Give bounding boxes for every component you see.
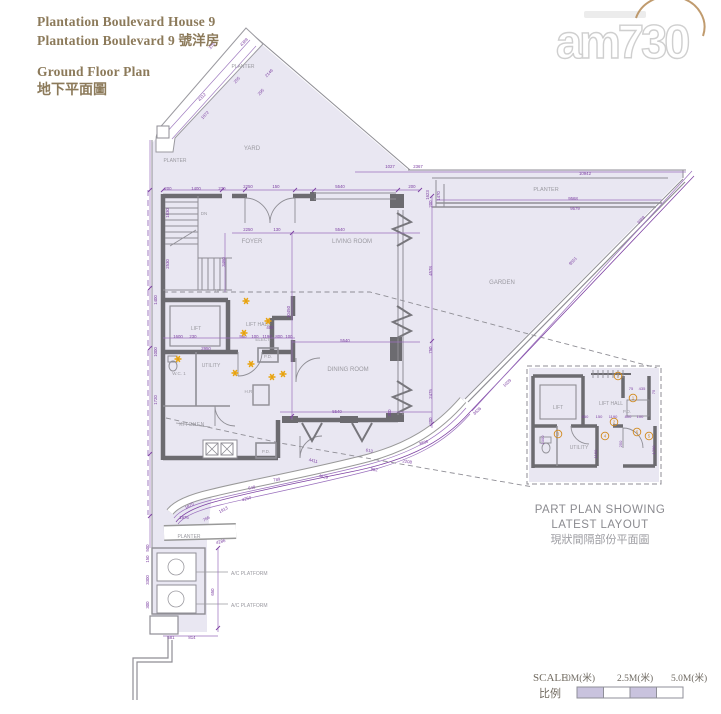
- dimension-label: 750: [428, 346, 433, 354]
- dimension-label: 5540: [335, 184, 345, 189]
- dimension-label: 4286: [215, 538, 226, 545]
- inset-dimension-label: 250: [618, 440, 623, 447]
- dimension-label: 2475: [428, 389, 433, 399]
- scale-tick-2: 5.0M(米): [671, 672, 707, 684]
- dimension-label: 200: [164, 186, 172, 191]
- room-label: A/C PLATFORM: [231, 571, 268, 577]
- dimension-label: 200: [428, 200, 433, 208]
- dimension-label: 9568: [568, 196, 578, 201]
- room-label: LIFT: [191, 326, 201, 332]
- room-label: FOYER: [242, 239, 263, 245]
- inset-part-plan: LIFTLIFT HALLP.D.UTILITY 7123465 6501501…: [527, 366, 661, 484]
- inset-dimension-label: 650: [582, 414, 589, 419]
- room-label: PLANTER: [231, 64, 254, 70]
- dimension-label: 2367: [413, 164, 423, 169]
- inset-caption: PART PLAN SHOWING LATEST LAYOUT 現狀間隔部份平面…: [535, 504, 666, 546]
- dimension-label: 3460: [221, 257, 226, 267]
- dimension-label: 150: [272, 184, 280, 189]
- dimension-label: 581: [167, 635, 175, 640]
- dimension-label: 5540: [335, 227, 345, 232]
- dimension-label: 1039: [502, 377, 513, 388]
- dimension-label: 2208: [402, 458, 413, 464]
- scale-tick-1: 2.5M(米): [617, 672, 653, 684]
- dimension-label: 300: [145, 601, 150, 609]
- dimension-label: 1400: [153, 295, 158, 305]
- dimension-label: 4629: [318, 473, 329, 480]
- inset-dimension-label: 75: [651, 389, 656, 394]
- dimension-label: 10942: [579, 171, 592, 176]
- inset-dimension-label: 100: [637, 414, 644, 419]
- dimension-label: 500: [145, 544, 150, 552]
- dimension-label: 2530: [165, 259, 170, 269]
- dimension-label: 3300: [145, 575, 150, 585]
- inset-dimension-label: 1190: [609, 414, 618, 419]
- dimension-label: 4250: [241, 495, 252, 503]
- dimension-label: 3636: [472, 405, 483, 416]
- dimension-label: 100: [251, 334, 259, 339]
- dimension-label: 982: [370, 467, 378, 473]
- dimension-label: 230: [189, 334, 197, 339]
- dimension-label: 1913: [218, 505, 229, 514]
- room-label: PLANTER: [177, 534, 200, 540]
- room-label: DINING ROOM: [327, 367, 368, 373]
- room-label: P.D.: [262, 449, 270, 454]
- dimension-label: 1000: [153, 347, 158, 357]
- dimension-label: 2950: [201, 346, 211, 351]
- dimension-label: 1027: [385, 164, 395, 169]
- dimension-label: 1720: [153, 395, 158, 405]
- scale-bar: SCALE 比例 0M(米) 2.5M(米) 5.0M(米): [533, 672, 707, 700]
- dimension-label: 1400: [191, 186, 201, 191]
- dimension-label: 814: [188, 635, 196, 640]
- room-label: P.D.: [264, 354, 272, 359]
- dimension-label: 150: [145, 555, 150, 563]
- scale-label-zh: 比例: [539, 686, 561, 700]
- dimension-label: 650: [210, 588, 215, 596]
- am730-logo: am730: [556, 0, 705, 68]
- dimension-label: 230: [218, 186, 226, 191]
- room-label: UTILITY: [202, 363, 221, 369]
- dimension-label: 800: [275, 334, 283, 339]
- room-label: GARDEN: [489, 280, 515, 286]
- dimension-label: 1623: [425, 190, 430, 200]
- room-label: H.R.: [245, 389, 254, 394]
- inset-room-label: LIFT: [553, 405, 563, 411]
- scale-tick-0: 0M(米): [566, 672, 595, 684]
- inset-dimension-label: 435: [639, 386, 646, 391]
- inset-caption-line2: LATEST LAYOUT: [551, 519, 648, 531]
- dimension-label: 1470: [436, 191, 441, 201]
- inset-caption-line3: 現狀間隔部份平面圖: [551, 532, 650, 546]
- inset-dimension-label: 800: [625, 414, 632, 419]
- room-label: A/C PLATFORM: [231, 603, 268, 609]
- page: { "title": { "line1": "Plantation Boulev…: [0, 0, 721, 714]
- dimension-label: 1190: [262, 334, 272, 339]
- room-label: DN: [201, 211, 208, 216]
- room-label: UP: [215, 288, 221, 293]
- dimension-label: 5540: [332, 409, 342, 414]
- dimension-label: 1830: [165, 208, 170, 218]
- dimension-label: 2250: [243, 184, 253, 189]
- inset-caption-line1: PART PLAN SHOWING: [535, 504, 666, 516]
- dimension-label: 4578: [428, 266, 433, 276]
- inset-dimension-label: 1000: [540, 435, 545, 445]
- floor-plan-svg: YARDFOYERLIVING ROOMGARDENDINING ROOMLIF…: [0, 0, 721, 714]
- dimension-label: 1976: [179, 515, 189, 520]
- room-label: W.C. 1: [172, 371, 186, 376]
- dimension-label: 9579: [570, 206, 580, 211]
- inset-dimension-label: 75: [629, 386, 634, 391]
- dimension-label: 2250: [243, 227, 253, 232]
- inset-dimension-label: 1700: [651, 445, 656, 455]
- dimension-label: 200: [428, 417, 433, 425]
- dimension-label: 10450: [286, 305, 291, 318]
- dimension-label: 130: [273, 227, 281, 232]
- dimension-label: 375: [208, 41, 217, 50]
- room-label: YARD: [244, 146, 261, 152]
- room-label: PLANTER: [163, 158, 186, 164]
- room-label: PLANTER: [533, 187, 558, 193]
- dimension-label: 1600: [173, 334, 183, 339]
- inset-room-label: UTILITY: [570, 445, 589, 451]
- dimension-label: 200: [408, 184, 416, 189]
- dimension-label: 300: [387, 409, 392, 417]
- dimension-label: 400: [266, 325, 274, 330]
- inset-room-label: LIFT HALL: [599, 401, 623, 407]
- room-label: LIVING ROOM: [332, 239, 372, 245]
- scale-label-en: SCALE: [533, 672, 568, 684]
- inset-dimension-label: 1150: [593, 449, 598, 458]
- inset-dimension-label: 150: [596, 414, 603, 419]
- logo-text: am730: [556, 15, 689, 68]
- dimension-label: 5540: [340, 338, 350, 343]
- dimension-label: 100: [285, 334, 293, 339]
